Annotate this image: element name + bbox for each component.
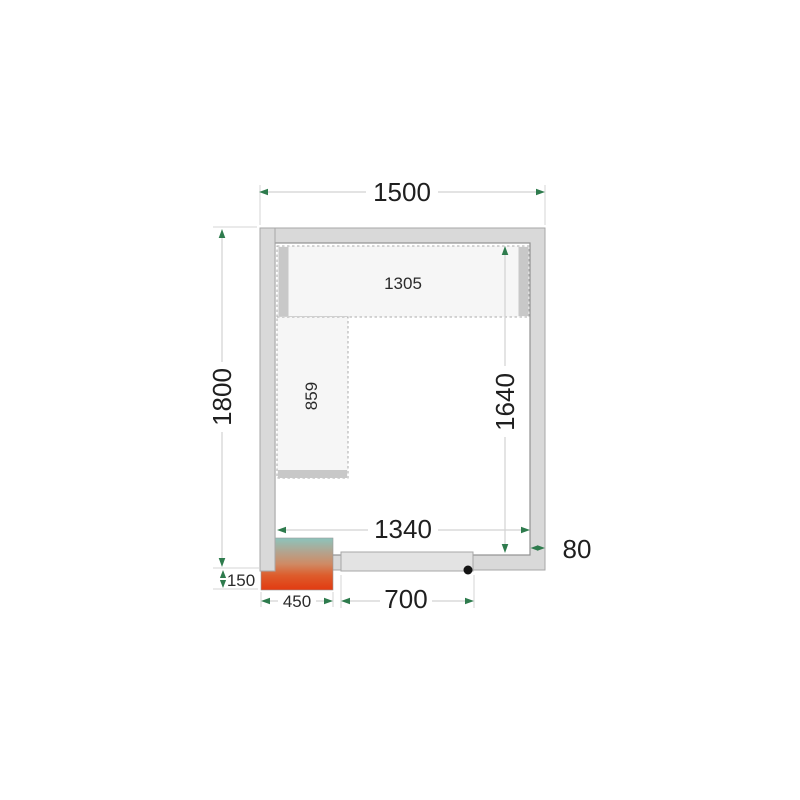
dim-arrow-down-icon <box>219 558 226 567</box>
left-wall-overlay <box>260 228 275 571</box>
dim-arrow-right-icon <box>324 598 333 605</box>
door-panel <box>341 552 473 571</box>
dim-arrow-right-icon <box>465 598 474 605</box>
dim-arrow-left-icon <box>341 598 350 605</box>
dim-arrow-down-icon <box>220 580 226 588</box>
floor-plan-canvas: 1305 859 1500 1800 1640 <box>0 0 800 800</box>
left-shelf: 859 <box>277 317 348 478</box>
dim-arrow-up-icon <box>219 229 226 238</box>
dim-arrow-up-icon <box>220 570 226 578</box>
dim-door-width-label: 700 <box>384 584 427 614</box>
door-handle-dot <box>464 566 473 575</box>
dim-inner-height-label: 1640 <box>490 373 520 431</box>
top-shelf-left-support <box>279 247 289 316</box>
dim-arrow-right-icon <box>536 189 545 196</box>
dim-unit-width-label: 450 <box>283 592 311 611</box>
dim-door-width: 700 <box>341 575 474 614</box>
dim-unit-protrusion: 150 <box>213 570 258 590</box>
top-shelf: 1305 <box>277 246 529 317</box>
dim-outer-width-label: 1500 <box>373 177 431 207</box>
dim-arrow-left-icon <box>261 598 270 605</box>
dim-unit-width: 450 <box>261 592 333 611</box>
dim-outer-width: 1500 <box>259 177 545 225</box>
dim-wall-thickness-label: 80 <box>563 534 592 564</box>
left-shelf-support <box>278 470 347 478</box>
dim-outer-height-label: 1800 <box>207 368 237 426</box>
dim-outer-height: 1800 <box>207 227 259 568</box>
top-shelf-length-label: 1305 <box>384 274 422 293</box>
left-shelf-length-label: 859 <box>302 382 321 410</box>
dim-inner-width-label: 1340 <box>374 514 432 544</box>
top-shelf-right-support <box>519 247 529 316</box>
cold-room-floor-plan: 1305 859 1500 1800 1640 <box>0 0 800 800</box>
dim-unit-protrusion-label: 150 <box>227 571 255 590</box>
